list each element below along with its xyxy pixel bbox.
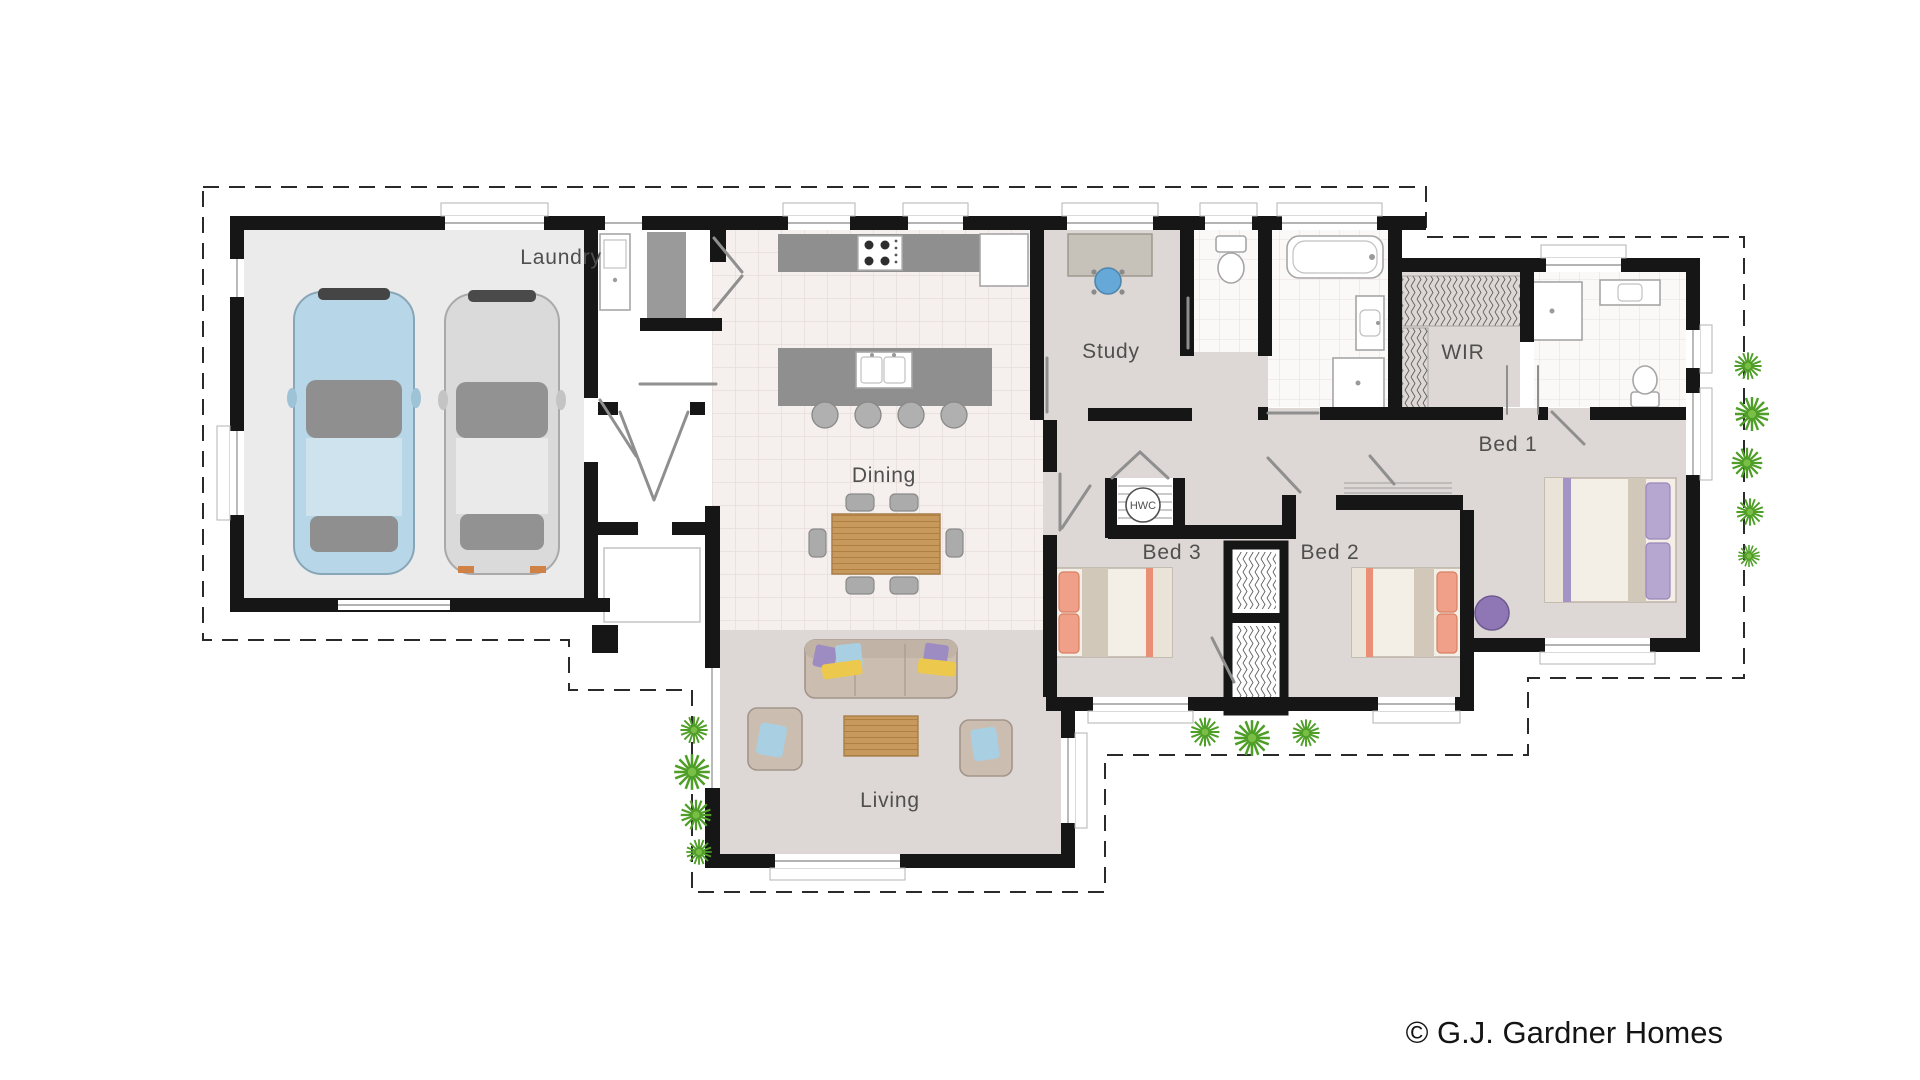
hwc-cylinder: HWC (1126, 488, 1160, 522)
bed-2 (1352, 568, 1462, 657)
bed-1 (1545, 478, 1676, 602)
cooktop (858, 236, 902, 270)
desk-chair (1095, 268, 1121, 294)
bath-shower (1333, 358, 1384, 408)
wir-label: WIR (1441, 341, 1484, 364)
sofa (805, 640, 957, 698)
ottoman (1475, 596, 1509, 630)
bed3-label: Bed 3 (1143, 541, 1202, 564)
armchair-left (748, 708, 802, 770)
laundry-tub (600, 234, 630, 310)
car-blue (287, 288, 421, 574)
bed2-label: Bed 2 (1301, 541, 1360, 564)
floor-plan: HWC Laundry Dining Living Study WIR Bed … (0, 0, 1920, 1080)
dining-label: Dining (852, 464, 916, 487)
study-label: Study (1082, 340, 1140, 363)
hwc-label: HWC (1130, 500, 1156, 512)
bed-3 (1055, 568, 1172, 657)
entry-floor (598, 415, 705, 522)
floor-plan-page: HWC Laundry Dining Living Study WIR Bed … (0, 0, 1920, 1080)
wc-toilet (1216, 236, 1246, 283)
bedroom-wardrobe-column (1228, 545, 1284, 711)
porch-outline (604, 548, 700, 622)
hall-floor (1180, 352, 1268, 420)
bed1-label: Bed 1 (1479, 433, 1538, 456)
car-silver (438, 290, 566, 574)
pantry-cupboard (647, 232, 686, 320)
kitchen-island (778, 348, 992, 406)
ensuite-toilet (1631, 366, 1659, 407)
laundry-label: Laundry (520, 246, 602, 269)
armchair-right (960, 720, 1012, 776)
ensuite-vanity (1600, 280, 1660, 305)
coffee-table (844, 716, 918, 756)
living-label: Living (860, 789, 920, 812)
bath-vanity (1356, 296, 1384, 350)
copyright-text: © G.J. Gardner Homes (1406, 1015, 1723, 1050)
porch-pillar (592, 625, 618, 653)
dining-table (832, 514, 940, 574)
bath-tub (1287, 236, 1383, 278)
